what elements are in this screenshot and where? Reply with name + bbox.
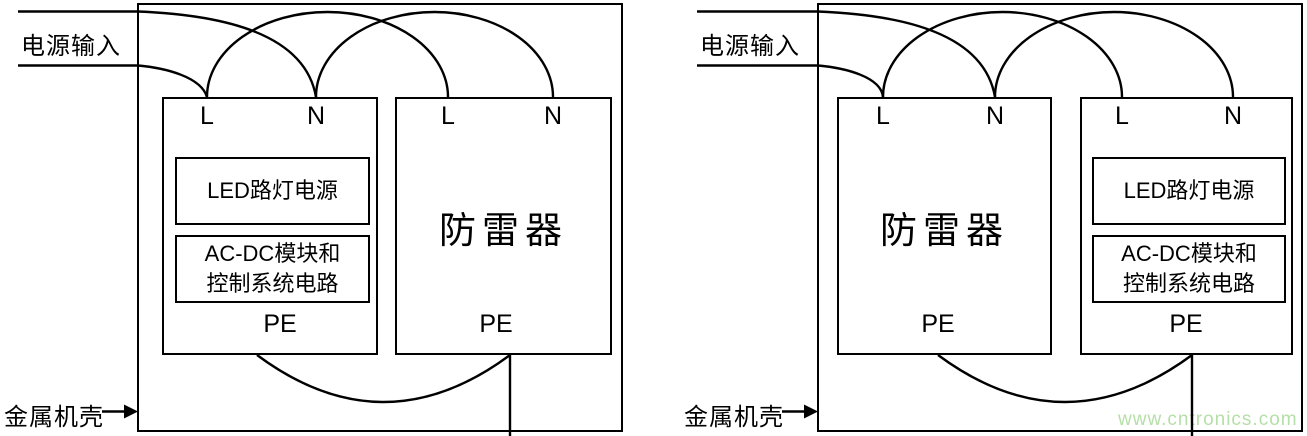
left-sp-terminal-n: N xyxy=(528,102,578,131)
left-surge-protector-label: 防雷器 xyxy=(395,200,612,254)
left-power-input-label: 电源输入 xyxy=(21,26,121,61)
right-power-input-label: 电源输入 xyxy=(700,26,800,61)
right-acdc-module-box: AC-DC模块和 控制系统电路 xyxy=(1092,235,1286,303)
right-led-driver-module-box: LED路灯电源 xyxy=(1092,157,1286,225)
right-led-terminal-pe: PE xyxy=(1141,310,1231,339)
left-metal-case-label: 金属机壳 xyxy=(4,397,104,432)
right-surge-protector-label: 防雷器 xyxy=(837,200,1052,254)
right-acdc-module-label-line2: 控制系统电路 xyxy=(1123,269,1255,299)
left-led-terminal-pe: PE xyxy=(235,310,325,339)
right-led-terminal-l: L xyxy=(1097,102,1147,131)
left-sp-terminal-pe: PE xyxy=(451,310,541,339)
right-sp-terminal-n: N xyxy=(970,102,1020,131)
right-led-terminal-n: N xyxy=(1208,102,1258,131)
left-acdc-module-box: AC-DC模块和 控制系统电路 xyxy=(175,235,370,303)
left-led-terminal-n: N xyxy=(291,102,341,131)
left-acdc-module-label-line2: 控制系统电路 xyxy=(206,269,338,299)
wiring-diagram-canvas: www.cntronics.com 电源输入 金属机壳 L N LED路灯电源 xyxy=(0,0,1307,436)
left-case-arrow-head-icon xyxy=(124,405,138,419)
left-acdc-module-label-line1: AC-DC模块和 xyxy=(205,239,341,269)
left-led-terminal-l: L xyxy=(182,102,232,131)
right-metal-case-label: 金属机壳 xyxy=(684,397,784,432)
right-sp-terminal-pe: PE xyxy=(893,310,983,339)
right-sp-terminal-l: L xyxy=(858,102,908,131)
right-led-driver-module-label: LED路灯电源 xyxy=(1124,176,1255,206)
right-acdc-module-label-line1: AC-DC模块和 xyxy=(1121,239,1257,269)
left-sp-terminal-l: L xyxy=(423,102,473,131)
right-case-arrow-head-icon xyxy=(804,405,818,419)
left-led-driver-module-box: LED路灯电源 xyxy=(175,157,370,225)
left-led-driver-module-label: LED路灯电源 xyxy=(207,176,338,206)
